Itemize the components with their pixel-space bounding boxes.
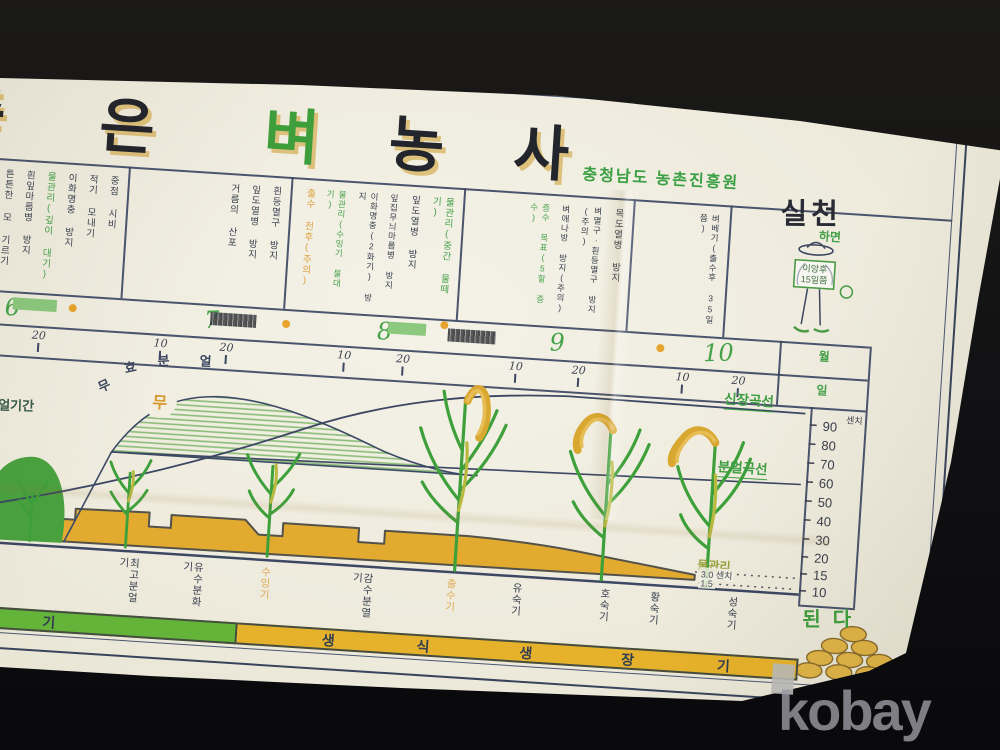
photo-of-poster: 좋 은 벼 농 사 충청남도 농촌진흥원 중점 시비 적기 모내기 이화명충 방…: [0, 0, 1000, 750]
growth-curve-label: 신장곡선: [724, 387, 775, 412]
poster-sheet: 좋 은 벼 농 사 충청남도 농촌진흥원 중점 시비 적기 모내기 이화명충 방…: [0, 36, 1000, 750]
axis-tick-label: 10: [811, 584, 846, 601]
axis-tick-label: 50: [817, 495, 852, 512]
practice-result: 된다: [802, 603, 863, 632]
banner-char: 장: [621, 649, 635, 670]
stage-label: 감수분열기: [349, 572, 374, 629]
water-depth-label-2: 1.5: [698, 578, 715, 589]
soil-band: [0, 498, 697, 582]
axis-tick-label: 15: [813, 567, 848, 584]
axis-tick-label: 80: [821, 438, 856, 455]
effective-period-label: 유효분얼기간: [0, 393, 34, 414]
banner-char: 생: [519, 643, 533, 664]
axis-tick-label: 30: [815, 533, 850, 550]
tiller-curve-label: 분얼곡선: [717, 455, 768, 480]
ineffective-tiller-char: 분: [157, 350, 170, 369]
rice-sacks-icon: [795, 623, 911, 684]
axis-tick-marks: [799, 425, 817, 591]
banner-char: 식: [416, 636, 430, 657]
axis-tick-label: 70: [820, 457, 855, 474]
watermark: kobay: [778, 678, 930, 743]
ineffective-tiller-char: 얼: [199, 350, 212, 370]
axis-tick-label: 90: [822, 419, 857, 436]
banner-char: 기: [716, 655, 730, 676]
axis-tick-label: 20: [814, 551, 849, 568]
stage-label: 유수분화기: [179, 561, 204, 618]
stage-label: 최고분얼기: [115, 557, 140, 614]
axis-tick-label: 40: [816, 514, 851, 531]
axis-tick-label: 60: [818, 476, 853, 493]
banner-char: 생: [321, 630, 335, 651]
banner-char: 기: [42, 612, 56, 633]
